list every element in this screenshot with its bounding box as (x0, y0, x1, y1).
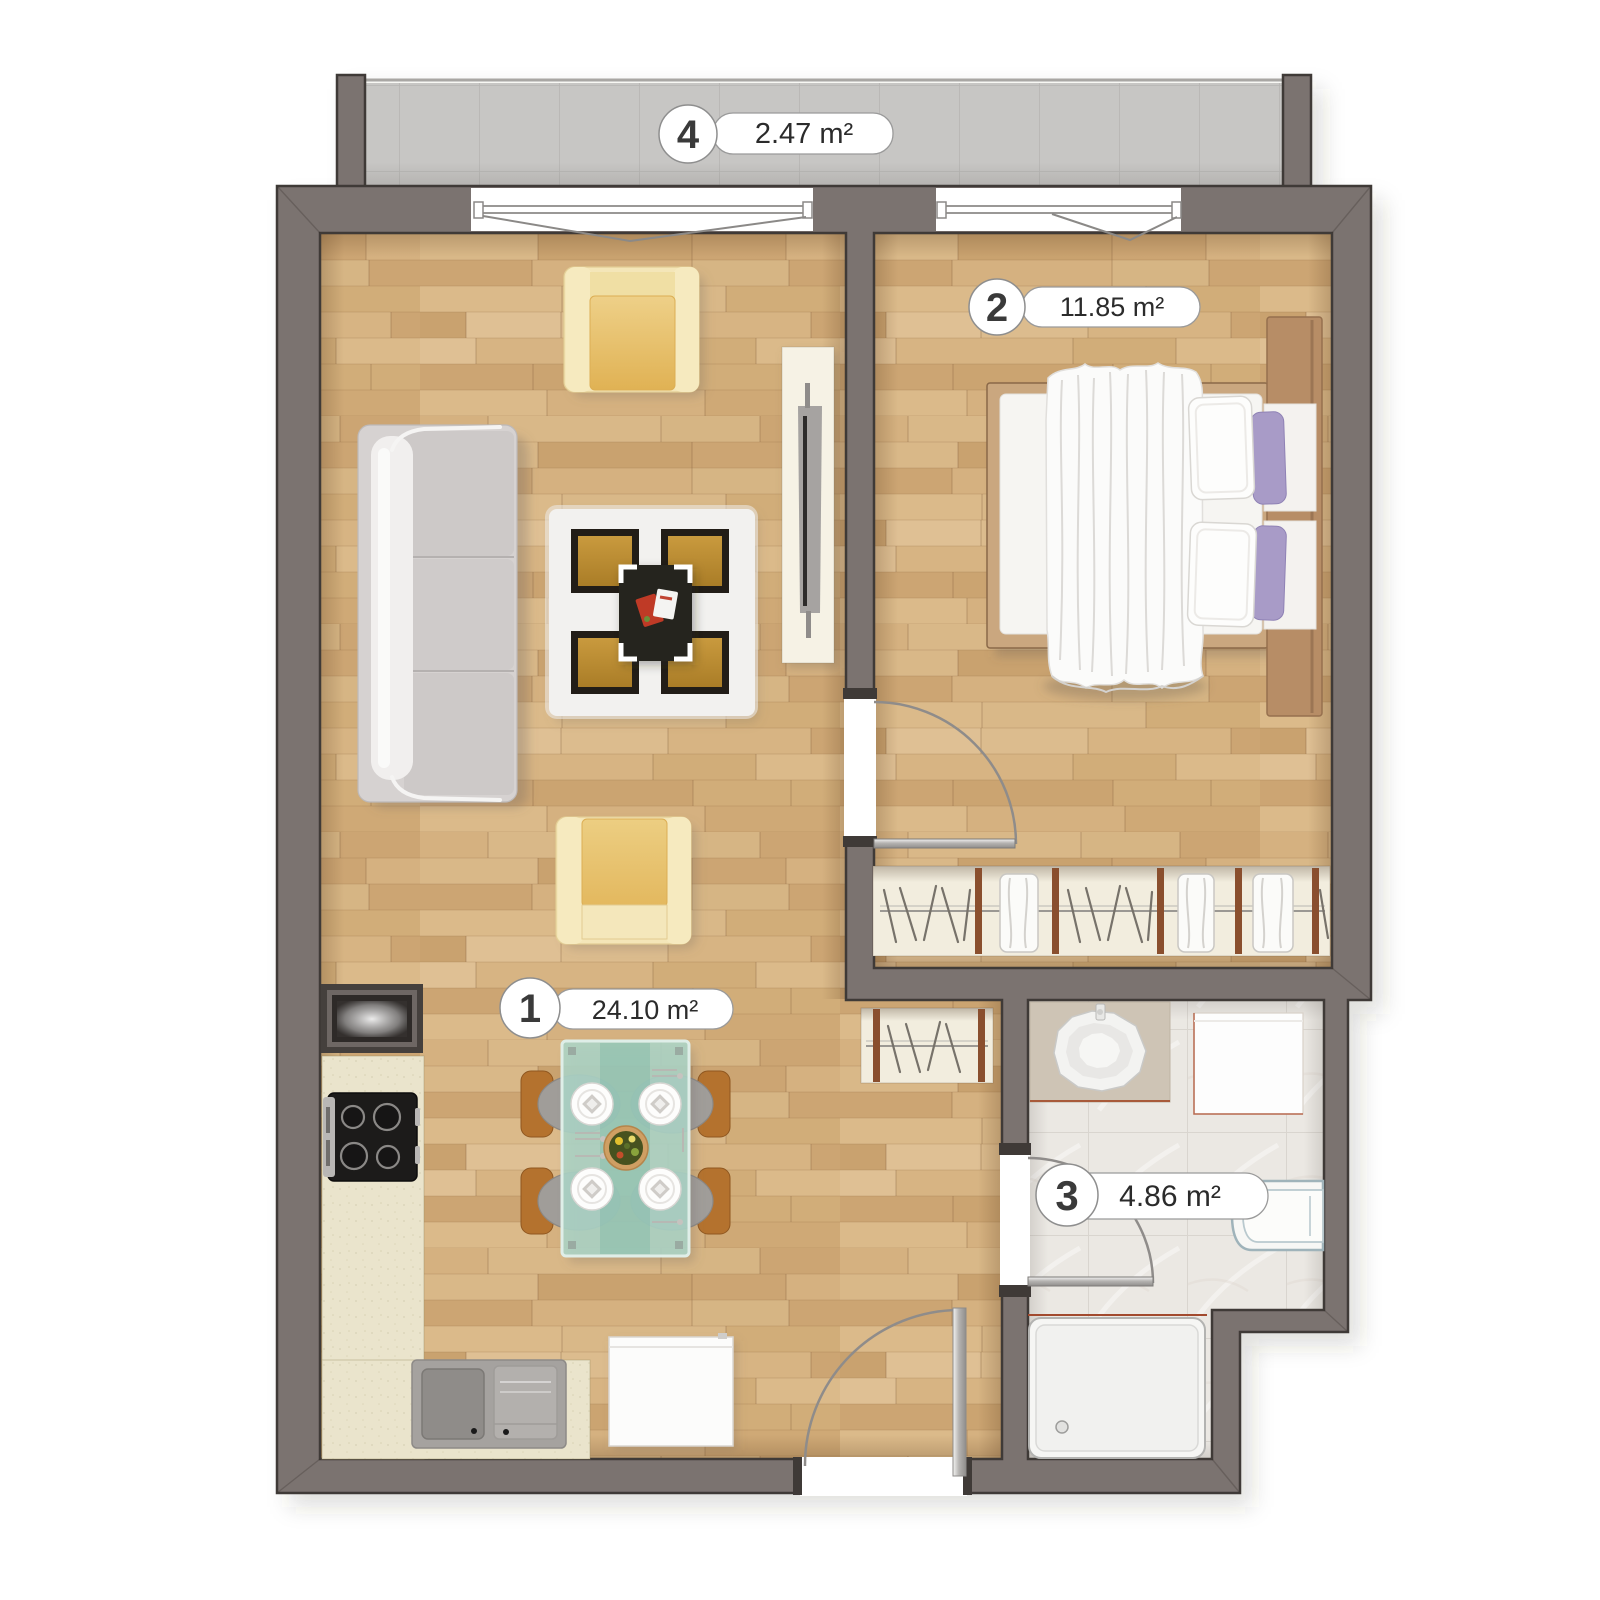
svg-text:3: 3 (1055, 1172, 1078, 1219)
svg-text:4.86 m²: 4.86 m² (1119, 1180, 1221, 1213)
svg-text:11.85 m²: 11.85 m² (1060, 292, 1165, 322)
svg-text:4: 4 (677, 113, 700, 157)
svg-text:2: 2 (986, 286, 1008, 330)
svg-text:1: 1 (519, 987, 541, 1031)
svg-text:2.47 m²: 2.47 m² (755, 118, 854, 150)
svg-text:24.10 m²: 24.10 m² (592, 995, 699, 1025)
